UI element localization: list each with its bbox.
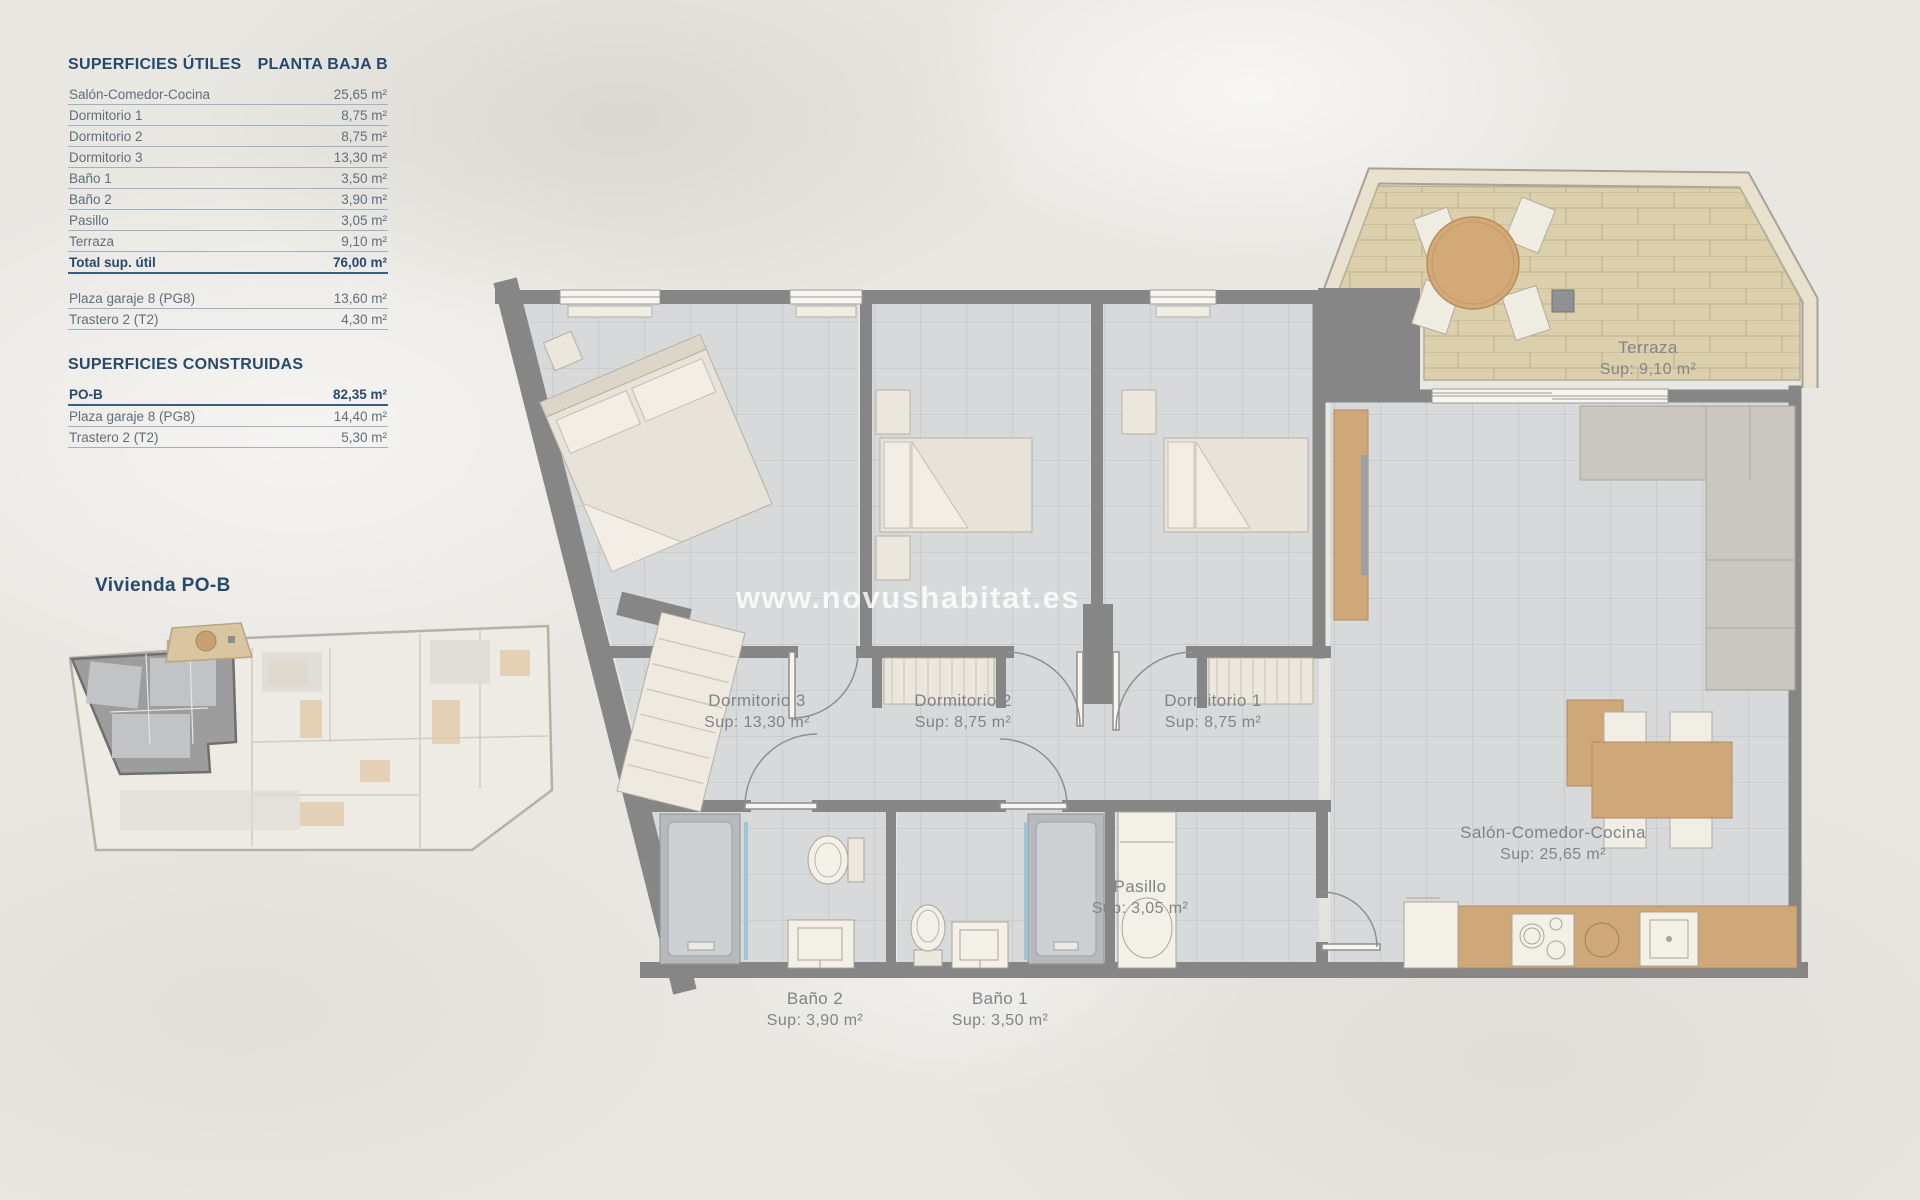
room-sup: Sup: 13,30 m² — [704, 712, 810, 734]
area-value: 8,75 m² — [341, 108, 387, 123]
room-name: Pasillo — [1092, 876, 1188, 898]
useful-areas-header: SUPERFICIES ÚTILES PLANTA BAJA B — [68, 56, 388, 74]
area-row: Baño 13,50 m² — [68, 168, 388, 189]
terrace-sliding-door — [1432, 389, 1668, 403]
area-value: 3,50 m² — [341, 171, 387, 186]
built-areas-title: SUPERFICIES CONSTRUIDAS — [68, 356, 388, 374]
area-row: Trastero 2 (T2)4,30 m² — [68, 309, 388, 330]
sink-bano2 — [788, 920, 854, 968]
area-row: Dormitorio 313,30 m² — [68, 147, 388, 168]
area-label: PO-B — [69, 387, 103, 402]
area-label: Trastero 2 (T2) — [69, 312, 159, 327]
room-name: Baño 1 — [952, 988, 1048, 1010]
area-value: 25,65 m² — [334, 87, 387, 102]
room-name: Salón-Comedor-Cocina — [1460, 822, 1646, 844]
built-area-total-row: PO-B82,35 m² — [68, 384, 388, 406]
area-label: Baño 1 — [69, 171, 112, 186]
fridge — [1404, 902, 1458, 968]
room-sup: Sup: 3,50 m² — [952, 1010, 1048, 1032]
area-value: 76,00 m² — [333, 255, 387, 270]
area-value: 13,60 m² — [334, 291, 387, 306]
area-label: Salón-Comedor-Cocina — [69, 87, 210, 102]
label-pasillo: Pasillo Sup: 3,05 m² — [1092, 876, 1188, 920]
areas-panel: SUPERFICIES ÚTILES PLANTA BAJA B Salón-C… — [68, 56, 388, 448]
area-row: Baño 23,90 m² — [68, 189, 388, 210]
window-dorm3 — [560, 290, 660, 317]
area-label: Plaza garaje 8 (PG8) — [69, 291, 195, 306]
area-label: Plaza garaje 8 (PG8) — [69, 409, 195, 424]
room-sup: Sup: 8,75 m² — [1164, 712, 1261, 734]
label-salon: Salón-Comedor-Cocina Sup: 25,65 m² — [1460, 822, 1646, 866]
area-value: 82,35 m² — [333, 387, 387, 402]
area-value: 3,90 m² — [341, 192, 387, 207]
area-value: 5,30 m² — [341, 430, 387, 445]
room-sup: Sup: 8,75 m² — [914, 712, 1011, 734]
label-dorm3: Dormitorio 3 Sup: 13,30 m² — [704, 690, 810, 734]
area-row: Plaza garaje 8 (PG8)14,40 m² — [68, 406, 388, 427]
area-label: Dormitorio 1 — [69, 108, 143, 123]
area-label: Trastero 2 (T2) — [69, 430, 159, 445]
room-name: Dormitorio 1 — [1164, 690, 1261, 712]
area-value: 3,05 m² — [341, 213, 387, 228]
area-label: Baño 2 — [69, 192, 112, 207]
area-row: Pasillo3,05 m² — [68, 210, 388, 231]
label-terraza: Terraza Sup: 9,10 m² — [1600, 337, 1696, 381]
area-label: Pasillo — [69, 213, 109, 228]
area-value: 9,10 m² — [341, 234, 387, 249]
window-dorm2 — [790, 290, 862, 317]
label-dorm2: Dormitorio 2 Sup: 8,75 m² — [914, 690, 1011, 734]
label-bano1: Baño 1 Sup: 3,50 m² — [952, 988, 1048, 1032]
label-bano2: Baño 2 Sup: 3,90 m² — [767, 988, 863, 1032]
area-label: Total sup. útil — [69, 255, 156, 270]
area-row: Trastero 2 (T2)5,30 m² — [68, 427, 388, 448]
room-name: Dormitorio 3 — [704, 690, 810, 712]
toilet-bano2 — [808, 836, 864, 884]
watermark: www.novushabitat.es — [736, 580, 1080, 616]
area-row: Terraza9,10 m² — [68, 231, 388, 252]
table-gap — [68, 274, 388, 288]
useful-areas-title: SUPERFICIES ÚTILES — [68, 56, 241, 74]
area-value: 13,30 m² — [334, 150, 387, 165]
area-row: Dormitorio 18,75 m² — [68, 105, 388, 126]
window-dorm1 — [1150, 290, 1216, 317]
unit-key-label: Vivienda PO-B — [95, 575, 231, 597]
sink-bano1 — [952, 922, 1008, 968]
area-label: Dormitorio 2 — [69, 129, 143, 144]
room-sup: Sup: 3,05 m² — [1092, 898, 1188, 920]
area-value: 8,75 m² — [341, 129, 387, 144]
room-sup: Sup: 25,65 m² — [1460, 844, 1646, 866]
room-name: Terraza — [1600, 337, 1696, 359]
label-dorm1: Dormitorio 1 Sup: 8,75 m² — [1164, 690, 1261, 734]
room-sup: Sup: 9,10 m² — [1600, 359, 1696, 381]
total-useful-area-row: Total sup. útil76,00 m² — [68, 252, 388, 274]
toilet-bano1 — [911, 905, 945, 966]
kitchen-counter — [1404, 898, 1797, 968]
area-row: Plaza garaje 8 (PG8)13,60 m² — [68, 288, 388, 309]
area-value: 4,30 m² — [341, 312, 387, 327]
area-label: Dormitorio 3 — [69, 150, 143, 165]
area-row: Salón-Comedor-Cocina25,65 m² — [68, 84, 388, 105]
room-name: Baño 2 — [767, 988, 863, 1010]
room-sup: Sup: 3,90 m² — [767, 1010, 863, 1032]
area-value: 14,40 m² — [334, 409, 387, 424]
key-plan-terrace — [166, 623, 252, 662]
floor-name: PLANTA BAJA B — [258, 56, 388, 74]
area-label: Terraza — [69, 234, 114, 249]
area-row: Dormitorio 28,75 m² — [68, 126, 388, 147]
room-name: Dormitorio 2 — [914, 690, 1011, 712]
